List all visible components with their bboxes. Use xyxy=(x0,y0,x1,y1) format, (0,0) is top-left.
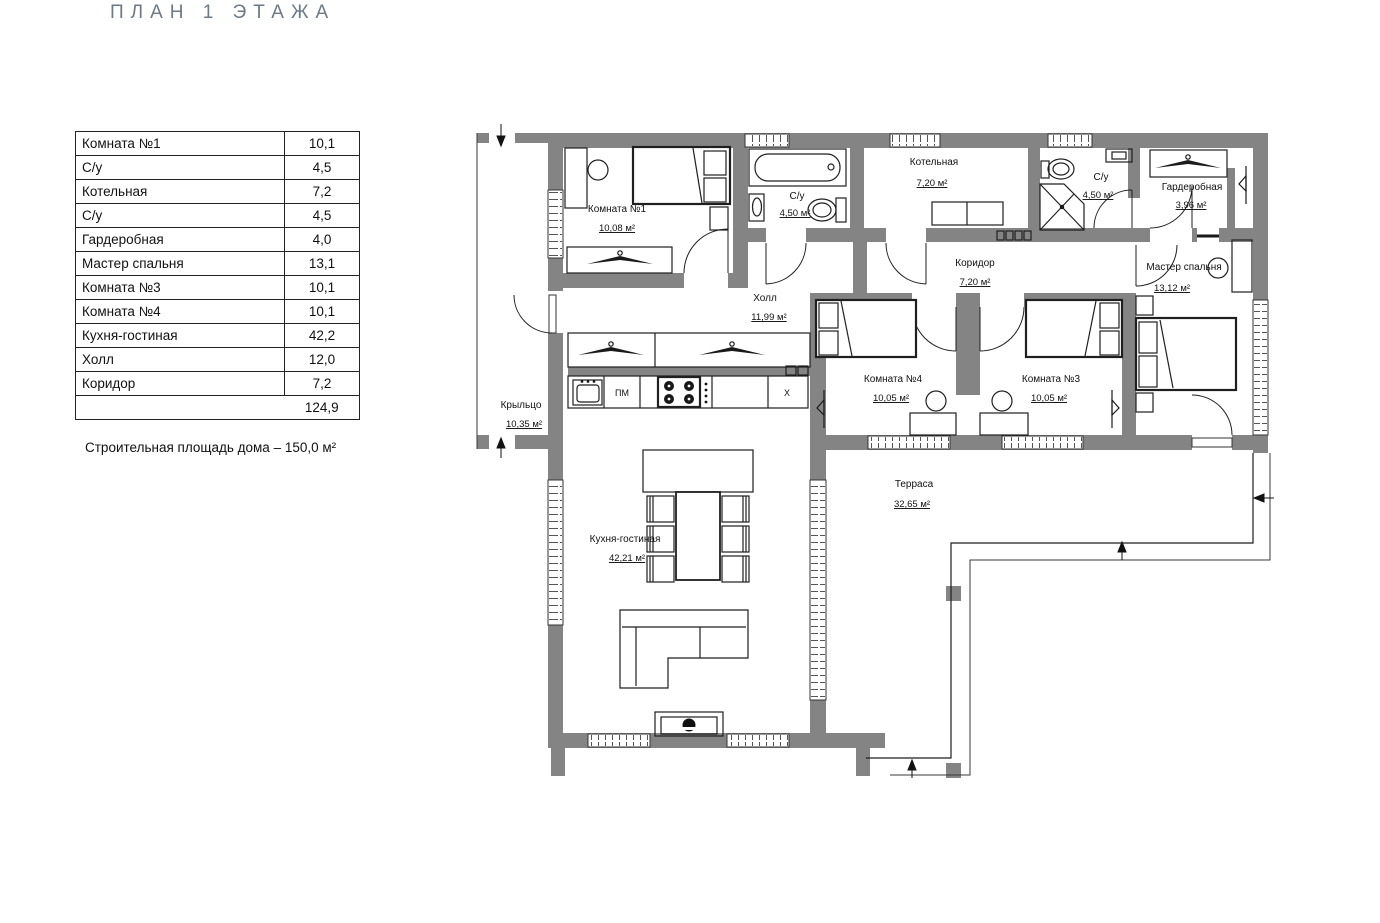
window-icon xyxy=(1002,436,1083,449)
room-label: Терраса xyxy=(895,479,934,490)
room-label: Кухня-гостиная xyxy=(590,534,661,545)
room-label: Гардеробная xyxy=(1162,181,1223,193)
window-icon xyxy=(868,436,950,449)
sink xyxy=(749,194,764,221)
room-label: Комната №4 xyxy=(864,374,923,385)
window-icon xyxy=(890,134,940,147)
kitchen-counter: ПМ Х xyxy=(568,376,808,408)
hall-closets xyxy=(568,333,810,367)
chair xyxy=(722,556,749,582)
room-label: Холл xyxy=(753,293,777,304)
room-label: Коридор xyxy=(955,258,995,269)
door-icon xyxy=(886,243,926,284)
walls xyxy=(477,133,1268,778)
door-icon xyxy=(980,307,1024,351)
bathtub xyxy=(749,149,846,186)
nightstand xyxy=(1136,296,1153,315)
shower xyxy=(1040,184,1084,230)
chair xyxy=(647,496,674,522)
bed xyxy=(1136,318,1236,390)
room-area-label: 4,50 м² xyxy=(1083,190,1114,201)
desk xyxy=(980,413,1028,435)
kitchen-sink xyxy=(573,380,602,405)
door-icon xyxy=(766,243,806,284)
window-icon xyxy=(548,190,563,258)
room-area-label: 10,05 м² xyxy=(1031,393,1067,404)
mirror-icon xyxy=(1239,166,1246,204)
desk xyxy=(910,413,956,435)
fridge-label: Х xyxy=(784,388,790,398)
room-label: С/у xyxy=(790,191,805,202)
room-area-label: 10,05 м² xyxy=(873,393,909,404)
wardrobe xyxy=(567,247,672,273)
nightstand xyxy=(1136,393,1153,412)
door-icon xyxy=(1192,395,1232,447)
arrow-icon xyxy=(1254,494,1274,502)
bed xyxy=(1026,300,1122,357)
room-label: Крыльцо xyxy=(501,400,542,411)
sofa xyxy=(620,610,748,688)
window-icon xyxy=(588,734,650,747)
dishwasher-label: ПМ xyxy=(615,388,629,398)
room-area-label: 3,96 м² xyxy=(1176,200,1207,211)
room-label: Мастер спальня xyxy=(1146,262,1221,273)
hanger-rod xyxy=(1150,150,1227,177)
window-icon xyxy=(548,480,563,625)
room-area-label: 7,20 м² xyxy=(917,178,948,189)
room-label: Котельная xyxy=(910,157,958,168)
stove xyxy=(658,377,700,407)
dining-table xyxy=(643,450,753,582)
window-icon xyxy=(727,734,789,747)
desk xyxy=(565,148,587,208)
room-area-label: 13,12 м² xyxy=(1154,283,1190,294)
bed xyxy=(633,147,730,204)
chair xyxy=(722,526,749,552)
floor-plan-drawing: ПМ Х xyxy=(0,0,1380,923)
chair xyxy=(588,160,608,180)
bed xyxy=(816,300,916,357)
toilet xyxy=(808,198,846,222)
room-label: Комната №3 xyxy=(1022,374,1081,385)
window-icon xyxy=(1048,134,1092,147)
window-icon xyxy=(810,480,826,700)
window-icon xyxy=(745,134,789,147)
boiler-equipment xyxy=(932,202,1003,225)
room-area-label: 10,35 м² xyxy=(506,419,542,430)
desk xyxy=(1232,240,1252,292)
room-area-label: 32,65 м² xyxy=(894,499,930,510)
nightstand xyxy=(710,207,728,230)
toilet xyxy=(1041,159,1074,179)
floor-plan-page: ПЛАН 1 ЭТАЖА Комната №110,1 С/у4,5 Котел… xyxy=(0,0,1380,923)
room-label: Комната №1 xyxy=(588,204,647,215)
room-area-label: 4,50 м² xyxy=(780,208,811,219)
room-area-label: 42,21 м² xyxy=(609,553,645,564)
window-icon xyxy=(1253,300,1268,435)
door-icon xyxy=(912,307,956,351)
chair xyxy=(722,496,749,522)
room-area-label: 11,99 м² xyxy=(751,312,786,323)
tv-stand xyxy=(655,712,723,736)
arrow-icon xyxy=(1118,542,1126,560)
door-icon xyxy=(514,295,556,333)
room-area-label: 7,20 м² xyxy=(960,277,991,288)
room-label: С/у xyxy=(1094,172,1109,183)
chair xyxy=(647,556,674,582)
mirror-icon xyxy=(1112,390,1119,428)
chair xyxy=(992,391,1012,411)
room-area-label: 10,08 м² xyxy=(599,223,635,234)
chair xyxy=(926,391,946,411)
door-icon xyxy=(684,229,728,273)
